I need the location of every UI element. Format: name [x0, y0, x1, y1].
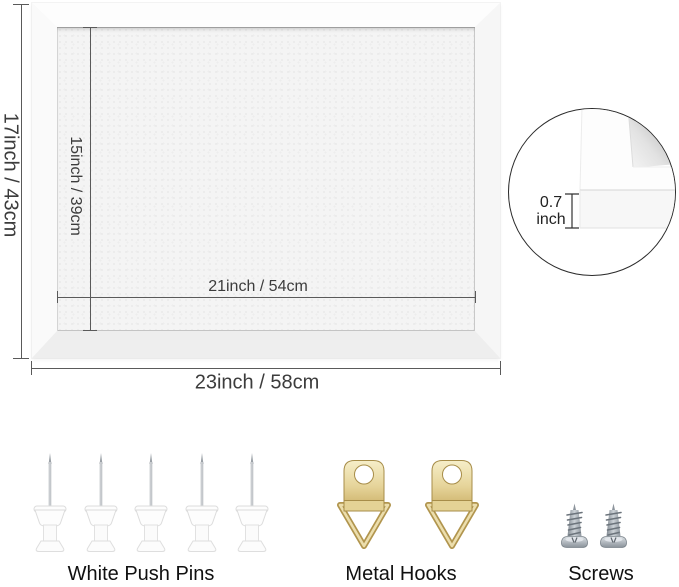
push-pin-icon — [230, 452, 274, 552]
inner-width-right-tick — [475, 291, 476, 303]
inner-height-dimension-line — [90, 27, 91, 331]
push-pins-group — [28, 452, 274, 552]
outer-height-bottom-tick — [13, 358, 29, 359]
outer-width-right-tick — [500, 361, 501, 375]
inner-width-left-tick — [57, 291, 58, 303]
screw-icon — [560, 503, 589, 551]
push-pin-icon — [129, 452, 173, 552]
outer-height-label: 17inch / 43cm — [0, 113, 22, 238]
outer-width-label: 23inch / 58cm — [195, 372, 320, 395]
thickness-value: 0.7 — [531, 194, 571, 211]
inner-width-label: 21inch / 54cm — [208, 278, 308, 296]
frame-corner-closeup — [509, 109, 675, 275]
outer-height-top-tick — [13, 4, 29, 5]
inner-width-dimension-line — [57, 297, 475, 298]
inner-height-label: 15inch / 39cm — [66, 136, 84, 236]
push-pins-label: White Push Pins — [68, 563, 215, 586]
metal-hooks-label: Metal Hooks — [345, 563, 456, 586]
outer-width-left-tick — [31, 361, 32, 375]
frame-thickness-detail-circle: 0.7 inch — [508, 108, 676, 276]
inner-height-top-tick — [83, 27, 97, 28]
thickness-unit: inch — [531, 211, 571, 228]
push-pin-icon — [79, 452, 123, 552]
push-pin-icon — [180, 452, 224, 552]
push-pin-icon — [28, 452, 72, 552]
screws-label: Screws — [568, 563, 634, 586]
thickness-label: 0.7 inch — [531, 194, 571, 228]
outer-width-dimension-line — [31, 368, 500, 369]
screw-icon — [599, 503, 628, 551]
metal-hook-icon — [333, 457, 395, 552]
metal-hook-icon — [421, 457, 483, 552]
product-dimension-diagram: 17inch / 43cm 15inch / 39cm 21inch / 54c… — [0, 0, 679, 587]
metal-hooks-group — [333, 457, 483, 552]
bulletin-board-frame — [32, 3, 500, 358]
screws-group — [560, 503, 628, 551]
inner-height-bottom-tick — [83, 330, 97, 331]
